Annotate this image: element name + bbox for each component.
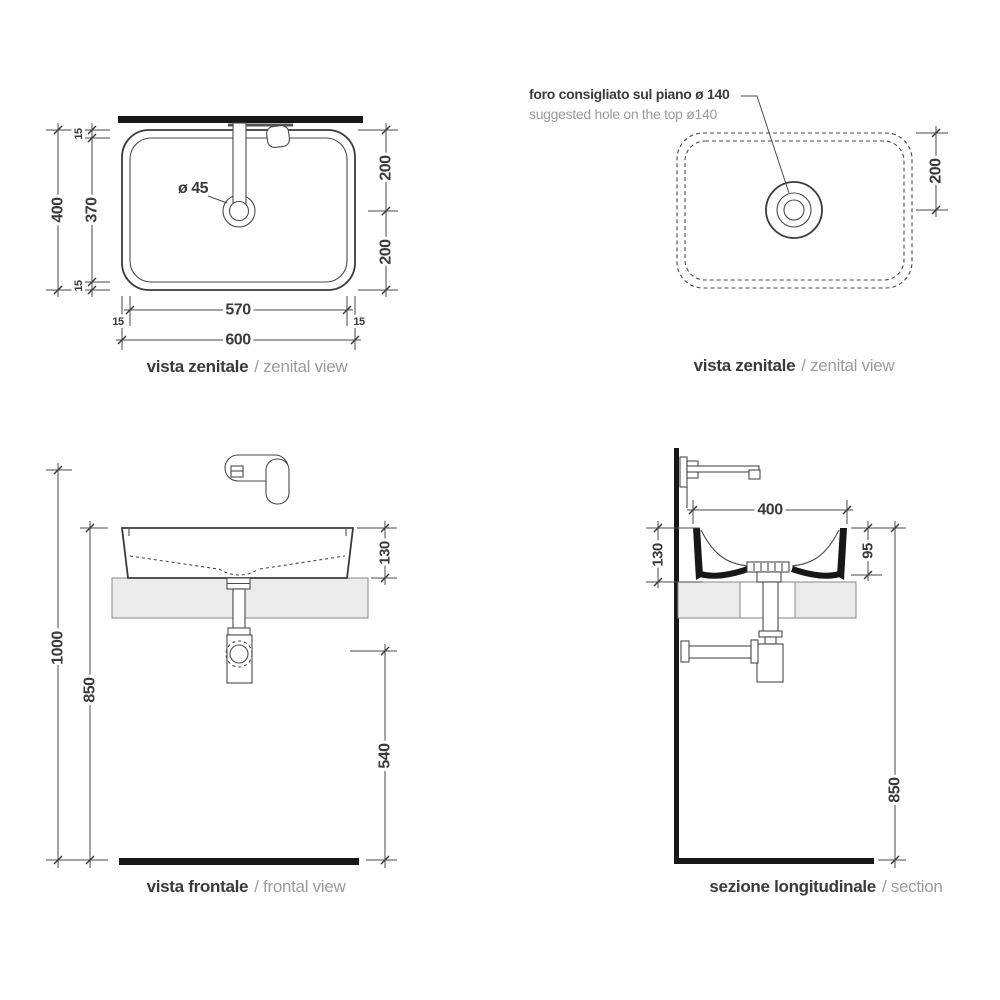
dim-drain-from-bottom: 200 <box>378 239 395 265</box>
dim-basin-width: 570 <box>225 302 251 319</box>
siphon-flange <box>759 631 782 637</box>
view-zenital-left: ø 45 400 15 370 15 200 200 <box>46 116 398 350</box>
caption-zenital-right: vista zenitale / zenital view <box>694 356 895 376</box>
technical-drawing-sheet: ø 45 400 15 370 15 200 200 <box>0 0 1000 1000</box>
caption-italian: vista frontale <box>147 877 249 897</box>
hole-outer-circle <box>766 182 822 238</box>
wall-section <box>674 448 679 862</box>
view-section: 400 130 95 850 <box>646 448 906 868</box>
dim-rim-height: 850 <box>887 777 904 803</box>
basin-body <box>122 528 353 578</box>
dim-basin-height: 370 <box>84 197 101 223</box>
faucet-wall-plate <box>680 457 687 487</box>
floor-line <box>119 858 359 865</box>
floor-line <box>674 858 874 864</box>
faucet-lever <box>266 459 289 504</box>
wall-bar <box>118 116 363 123</box>
wall-pipe-flange <box>681 641 689 662</box>
caption-frontal: vista frontale / frontal view <box>147 877 346 897</box>
note-leader-line <box>741 96 789 193</box>
siphon-flange <box>228 628 250 635</box>
caption-english: / frontal view <box>254 877 345 897</box>
dim-basin-height: 130 <box>377 541 394 565</box>
dim-basin-width: 400 <box>757 502 783 519</box>
hole-note: foro consigliato sul piano ø 140 suggest… <box>529 84 729 124</box>
drain-diameter-label: ø 45 <box>178 180 209 197</box>
dim-trap-height: 540 <box>377 743 394 769</box>
waste-body <box>757 572 781 582</box>
dim-hole-from-top: 200 <box>928 158 945 184</box>
dim-drain-from-top: 200 <box>378 155 395 181</box>
dim-offset-right: 15 <box>353 316 365 328</box>
dim-total-height: 1000 <box>50 631 67 665</box>
caption-italian: vista zenitale <box>147 357 249 377</box>
dim-offset-left: 15 <box>112 316 124 328</box>
dim-offset-top: 15 <box>73 128 85 140</box>
dim-basin-height: 130 <box>650 543 667 567</box>
siphon-neck <box>765 637 776 644</box>
caption-italian: sezione longitudinale <box>709 877 876 897</box>
dim-overall-width: 600 <box>225 332 251 349</box>
faucet-spout-tip <box>749 470 760 479</box>
view-zenital-right: 200 <box>677 96 948 288</box>
hole-note-italian: foro consigliato sul piano ø 140 <box>529 84 729 104</box>
basin-inner-surface-right <box>792 530 839 566</box>
caption-english: / zenital view <box>801 356 894 376</box>
dim-rim-height: 850 <box>82 677 99 703</box>
caption-zenital-left: vista zenitale / zenital view <box>147 357 348 377</box>
hole-note-english: suggested hole on the top ø140 <box>529 104 729 124</box>
basin-bottom-left <box>697 569 748 576</box>
waste-pipe-to-wall <box>688 646 751 658</box>
drain-pipe <box>233 589 245 629</box>
caption-italian: vista zenitale <box>694 356 796 376</box>
basin-bottom-right <box>792 569 843 576</box>
dim-offset-bottom: 15 <box>73 280 85 292</box>
drawing-linework: ø 45 400 15 370 15 200 200 <box>0 0 1000 1000</box>
siphon-cup <box>757 644 783 682</box>
faucet-spout <box>233 123 246 205</box>
dim-inner-depth: 95 <box>860 543 877 559</box>
caption-english: / section <box>882 877 943 897</box>
caption-english: / zenital view <box>254 357 347 377</box>
dim-overall-height: 400 <box>50 197 67 223</box>
faucet-lever <box>266 125 290 149</box>
siphon-body <box>227 635 252 683</box>
faucet-spout <box>687 466 759 472</box>
drain-pipe <box>763 582 778 632</box>
view-frontal: 1000 850 130 540 <box>46 455 397 868</box>
siphon-connector <box>751 640 758 663</box>
basin-inner-surface-left <box>701 530 748 566</box>
caption-section: sezione longitudinale / section <box>709 877 942 897</box>
drain-cap <box>230 202 249 221</box>
